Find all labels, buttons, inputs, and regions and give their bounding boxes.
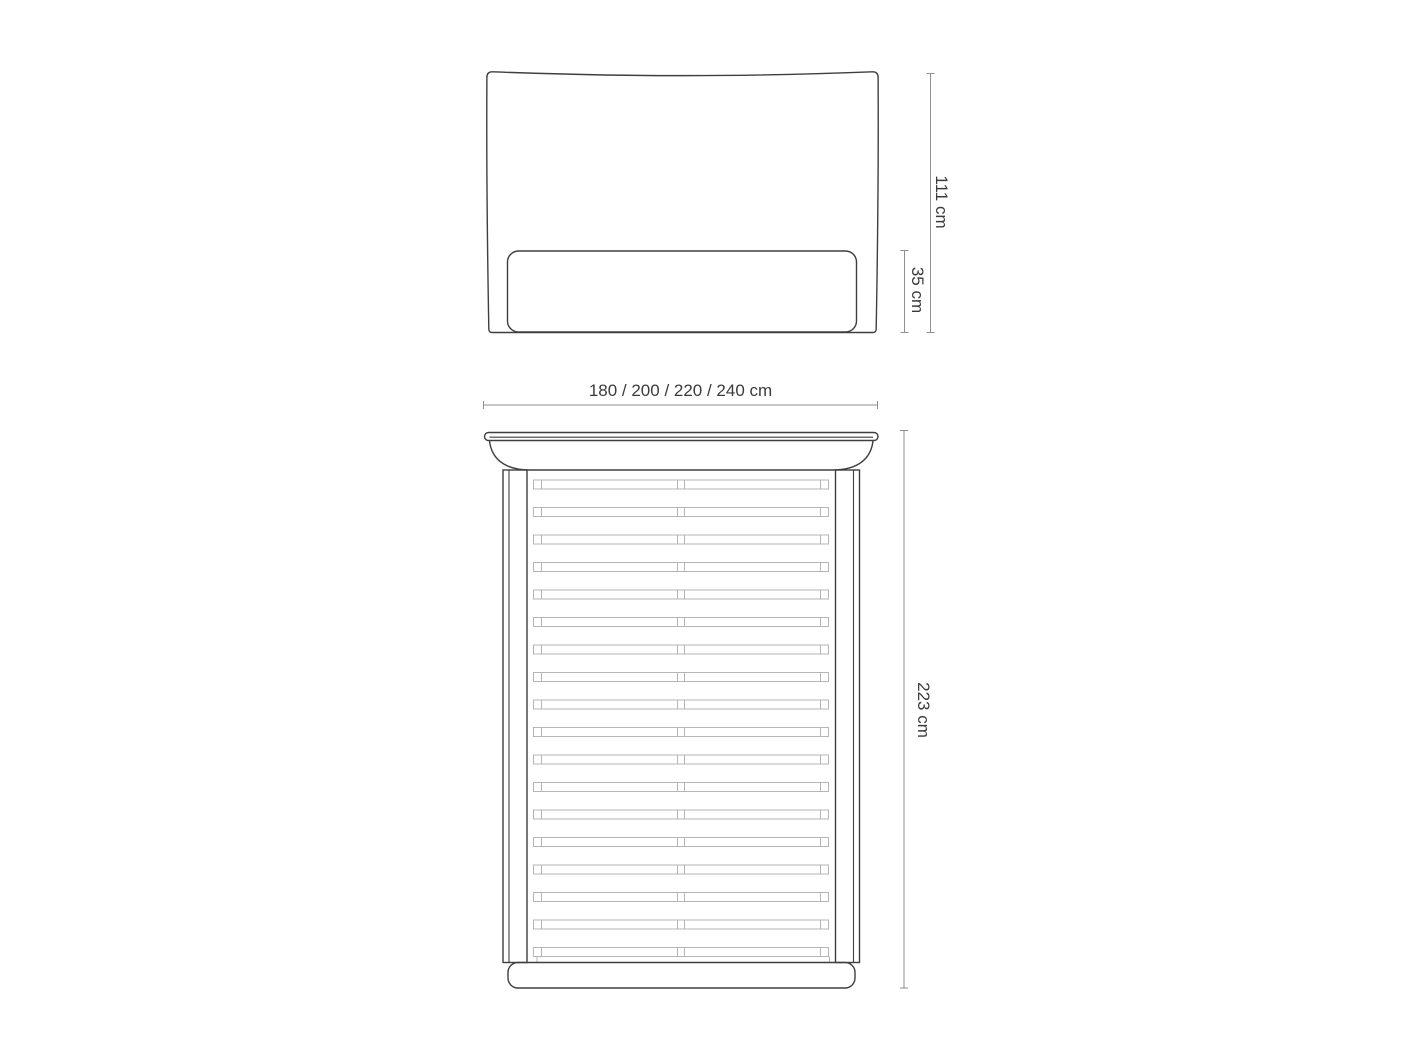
side-rail-right: [836, 470, 860, 963]
slat-row: [534, 948, 829, 957]
headboard-base-panel: [508, 251, 857, 332]
slat-row: [534, 865, 829, 874]
plan-view: [484, 401, 909, 988]
diagram-canvas: 111 cm 35 cm 180 / 200 / 220 / 240 cm 22…: [0, 0, 1409, 1056]
slats: [534, 480, 829, 957]
dim-line-length: [900, 431, 908, 989]
slat-row: [534, 838, 829, 847]
slat-row: [534, 810, 829, 819]
slat-row: [534, 480, 829, 489]
label-width: 180 / 200 / 220 / 240 cm: [589, 380, 772, 400]
footboard: [508, 963, 855, 989]
slat-row: [534, 673, 829, 682]
slat-row: [534, 618, 829, 627]
headboard-plan-body: [490, 441, 874, 470]
slat-row: [534, 563, 829, 572]
line-art: [0, 0, 1409, 1056]
slat-row: [534, 700, 829, 709]
slat-row: [534, 783, 829, 792]
slat-row: [534, 590, 829, 599]
headboard-outline: [487, 72, 878, 333]
slat-row: [534, 535, 829, 544]
headboard-top-bar: [485, 433, 879, 441]
dim-line-width: [484, 401, 878, 409]
slat-row: [534, 755, 829, 764]
slat-row: [534, 893, 829, 902]
label-height-base: 35 cm: [906, 266, 926, 312]
slat-row: [534, 728, 829, 737]
label-height-total: 111 cm: [931, 175, 951, 228]
slat-row: [534, 920, 829, 929]
label-length: 223 cm: [912, 682, 932, 738]
slat-row: [534, 645, 829, 654]
slat-row: [534, 508, 829, 517]
side-rail-left: [503, 470, 527, 963]
front-view: [487, 72, 935, 333]
